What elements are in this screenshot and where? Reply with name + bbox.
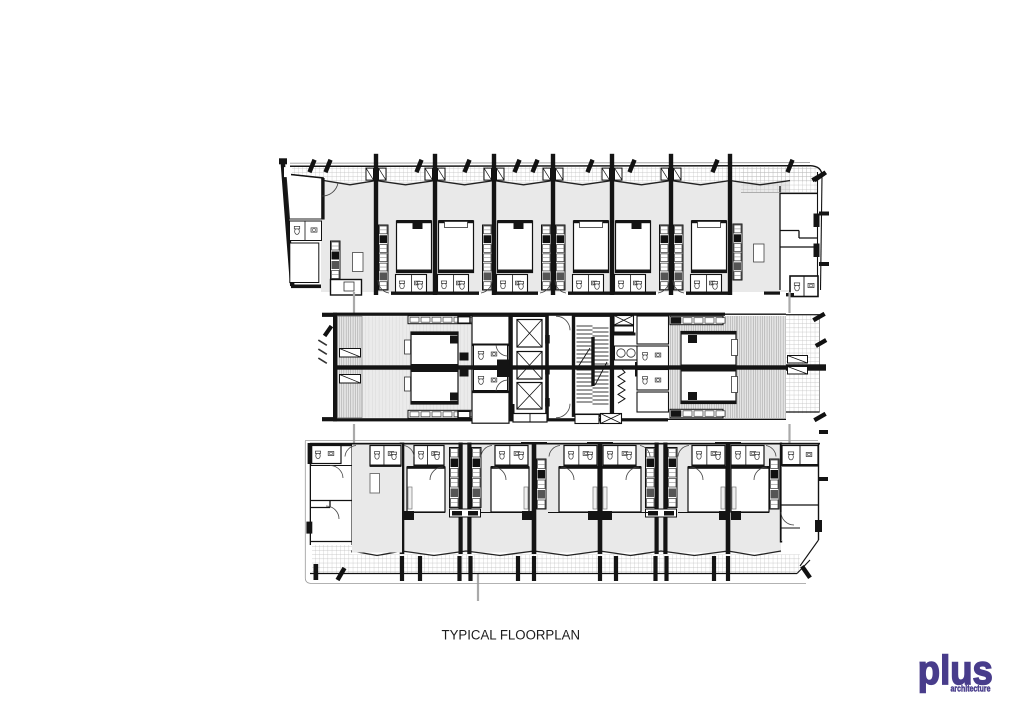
svg-text:architecture: architecture — [951, 683, 991, 693]
svg-text:TYPICAL FLOORPLAN: TYPICAL FLOORPLAN — [442, 627, 581, 643]
